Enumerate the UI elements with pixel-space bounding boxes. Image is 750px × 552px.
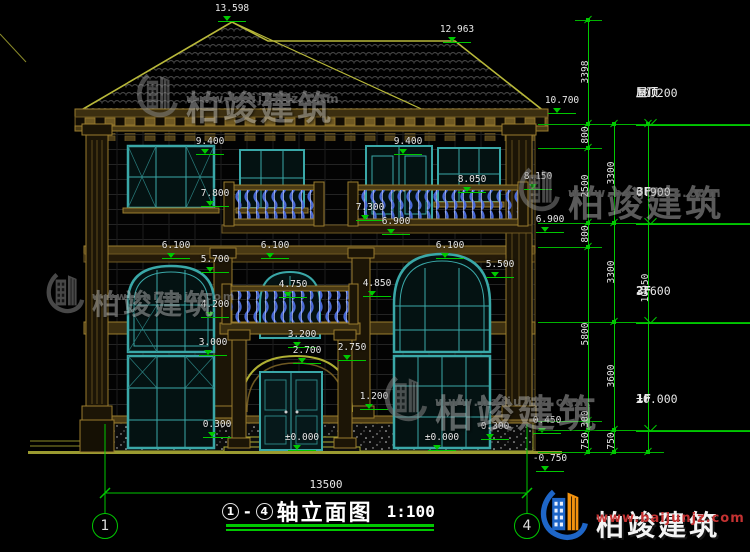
dim-text: -0.750 [527, 454, 573, 464]
dim-label: 6.900 [373, 217, 419, 235]
dim-label: 2.750 [329, 343, 375, 361]
level-mark-icon [293, 356, 321, 364]
chain-node [646, 450, 650, 454]
dim-label: 8.050 [449, 175, 495, 193]
brand-url: www.baijunjz.com [435, 395, 590, 409]
level-triangle-icon [644, 311, 657, 324]
overall-width-dimension: 13500 [286, 478, 366, 491]
brand-url: www.baijunjz.com [568, 186, 723, 200]
chain-node [612, 320, 616, 324]
level-mark-icon [201, 199, 229, 207]
dim-text: 0.300 [194, 420, 240, 430]
dim-text: 8.050 [449, 175, 495, 185]
level-marker: 2F3.600 [636, 284, 750, 324]
title-dash: - [244, 502, 251, 521]
dim-text: 6.100 [252, 241, 298, 251]
dim-text: 5.500 [477, 260, 523, 270]
title-underline-thick [226, 524, 434, 527]
dim-label: 12.963 [434, 25, 480, 43]
chain-dimension-value: 3600 [606, 352, 618, 400]
level-mark-icon [279, 290, 307, 298]
level-triangle-icon [644, 113, 657, 126]
level-mark-icon [199, 348, 227, 356]
dim-text: ±0.000 [279, 433, 325, 443]
dim-text: 4.850 [354, 279, 400, 289]
level-mark-icon [218, 14, 246, 22]
chain-dimension-value: 3300 [606, 248, 618, 296]
cad-drawing-canvas: 13.59812.96310.7009.4009.4008.0508.1507.… [0, 0, 750, 552]
brand-url: www.baijunjz.com [596, 511, 745, 526]
baijun-logo-icon [384, 368, 428, 422]
chain-dimension-value: 3398 [580, 48, 592, 96]
level-line [636, 323, 750, 324]
title-axis-bubble-start: 1 [222, 503, 239, 520]
level-mark-icon [363, 289, 391, 297]
level-mark-icon [203, 430, 231, 438]
extension-line [538, 247, 602, 248]
dim-label: 13.598 [209, 4, 255, 22]
dim-text: 2.750 [329, 343, 375, 353]
drawing-title: 1 - 4 轴立面图 1:100 [222, 495, 435, 527]
title-axis-bubble-end: 4 [256, 503, 273, 520]
axis-bubble-4-label: 4 [523, 518, 532, 534]
dim-text: 12.963 [434, 25, 480, 35]
level-mark-icon [196, 147, 224, 155]
level-mark-icon [162, 251, 190, 259]
level-triangle-icon [644, 419, 657, 432]
baijun-logo-icon [46, 266, 85, 314]
level-mark-icon [394, 147, 422, 155]
dim-label: 3.000 [190, 338, 236, 356]
title-text: 轴立面图 [277, 495, 373, 527]
dim-text: 13.598 [209, 4, 255, 14]
dim-text: 6.900 [527, 215, 573, 225]
baijun-logo-icon [540, 481, 589, 541]
level-mark-icon [536, 225, 564, 233]
dim-label: 5.700 [192, 255, 238, 273]
level-mark-icon [458, 185, 486, 193]
dim-text: 10.700 [539, 96, 585, 106]
house-elevation-drawing [0, 0, 750, 552]
level-marker: 屋顶10.200 [636, 86, 750, 126]
dim-text: 9.400 [187, 137, 233, 147]
dim-text: 7.800 [192, 189, 238, 199]
level-mark-icon [486, 270, 514, 278]
dim-text: 5.700 [192, 255, 238, 265]
dim-label: 7.800 [192, 189, 238, 207]
level-mark-icon [288, 443, 316, 451]
level-mark-icon [443, 35, 471, 43]
dim-label: ±0.000 [279, 433, 325, 451]
chain-node [586, 18, 590, 22]
dim-text: 3.200 [279, 330, 325, 340]
title-scale: 1:100 [387, 502, 435, 521]
level-value: 10.200 [636, 86, 678, 100]
title-underline-thin [226, 529, 434, 531]
dim-label: -0.750 [527, 454, 573, 472]
brand-logo: 柏竣建筑www.baijunjz.com [540, 481, 596, 541]
baijun-logo-icon [518, 160, 561, 212]
level-value: ±0.000 [636, 392, 678, 406]
dim-label: 4.750 [270, 280, 316, 298]
dim-text: 3.000 [190, 338, 236, 348]
chain-node [612, 122, 616, 126]
extension-line [538, 148, 602, 149]
level-value: 3.600 [636, 284, 671, 298]
dim-label: 9.400 [187, 137, 233, 155]
dim-label: 4.850 [354, 279, 400, 297]
axis-bubble-1-label: 1 [101, 518, 110, 534]
axis-bubble-4: 4 [514, 513, 540, 539]
level-mark-icon [548, 106, 576, 114]
level-mark-icon [382, 227, 410, 235]
chain-dimension-value: 5800 [580, 310, 592, 358]
brand-url: www.baijunjz.com [186, 92, 341, 106]
chain-dimension-value: 800 [580, 111, 592, 159]
dim-label: 6.900 [527, 215, 573, 233]
dim-text: 7.300 [347, 203, 393, 213]
axis-bubble-1: 1 [92, 513, 118, 539]
level-mark-icon [428, 443, 456, 451]
dim-label: 10.700 [539, 96, 585, 114]
watermark: 柏竣建筑www.baijunjz.com [136, 66, 186, 118]
level-line [636, 431, 750, 432]
level-mark-icon [338, 353, 366, 361]
dim-label: 6.100 [427, 241, 473, 259]
level-mark-icon [201, 265, 229, 273]
level-mark-icon [536, 464, 564, 472]
dim-text: 6.900 [373, 217, 419, 227]
baijun-logo-icon [136, 66, 179, 118]
dim-text: 4.750 [270, 280, 316, 290]
chain-dimension-value: 750 [606, 417, 618, 465]
dim-text: 6.100 [153, 241, 199, 251]
dim-text: 6.100 [427, 241, 473, 251]
watermark: 柏竣建筑www.baijunjz.com [384, 368, 435, 422]
level-marker: 1F±0.000 [636, 392, 750, 432]
dim-text: 9.400 [385, 137, 431, 147]
dim-label: 0.300 [194, 420, 240, 438]
dim-label: 9.400 [385, 137, 431, 155]
level-mark-icon [436, 251, 464, 259]
dim-label: 2.700 [284, 346, 330, 364]
dim-text: 2.700 [284, 346, 330, 356]
dim-label: 6.100 [252, 241, 298, 259]
dim-label: 5.500 [477, 260, 523, 278]
brand-url: www.baijunjz.com [92, 290, 236, 303]
level-line [636, 125, 750, 126]
watermark: 柏竣建筑www.baijunjz.com [46, 266, 92, 314]
watermark: 柏竣建筑www.baijunjz.com [518, 160, 568, 212]
level-mark-icon [261, 251, 289, 259]
